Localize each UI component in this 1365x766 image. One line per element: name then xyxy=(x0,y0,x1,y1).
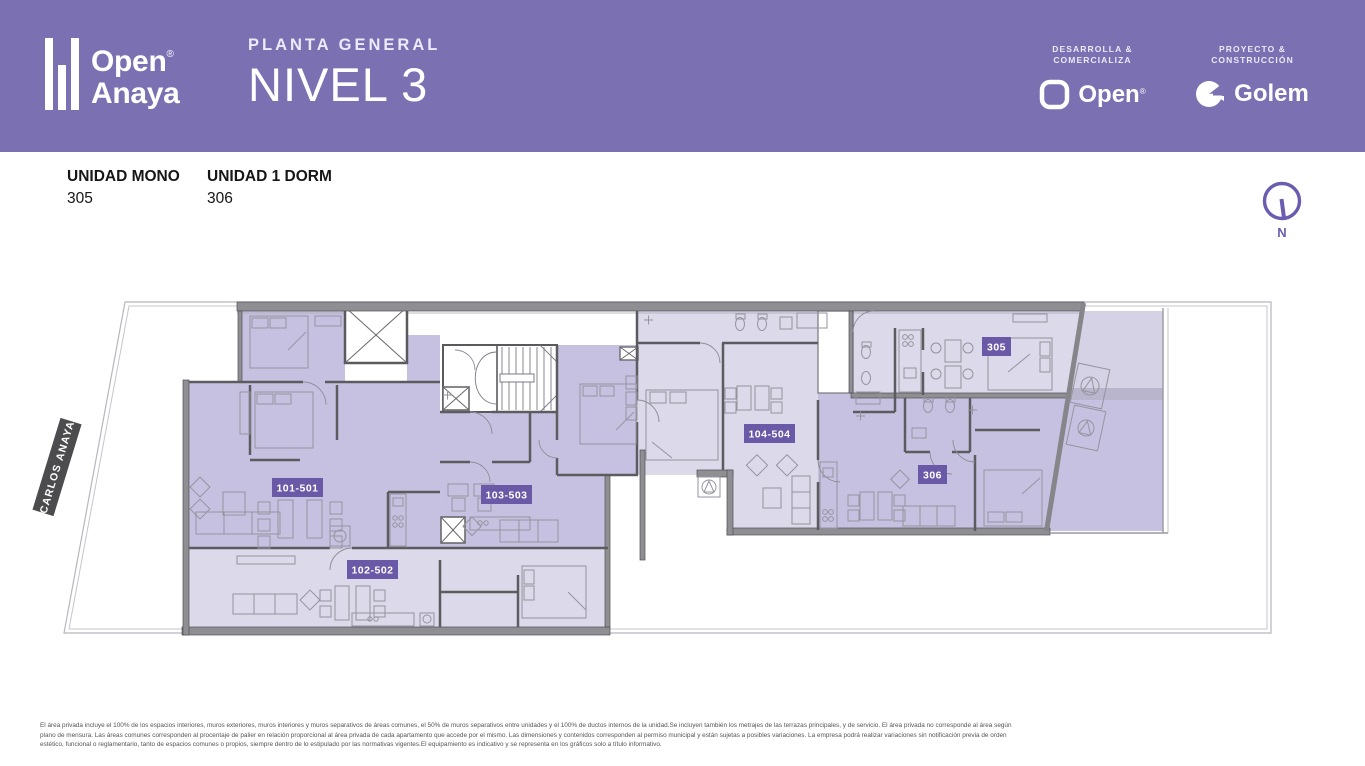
disclaimer-line-3: estético, funcional o reglamentario, tan… xyxy=(40,740,1330,750)
svg-text:102-502: 102-502 xyxy=(351,565,393,577)
disclaimer: El área privada incluye el 100% de los e… xyxy=(40,721,1330,750)
disclaimer-line-1: El área privada incluye el 100% de los e… xyxy=(40,721,1330,731)
disclaimer-line-2: plano de mensura. Las áreas comunes corr… xyxy=(40,731,1330,741)
page: Open® Anaya PLANTA GENERAL NIVEL 3 DESAR… xyxy=(0,0,1365,766)
unit-label-104-504: 104-504 xyxy=(744,424,795,443)
svg-text:101-501: 101-501 xyxy=(276,483,318,495)
svg-text:306: 306 xyxy=(923,470,942,482)
street-label: CARLOS ANAYA xyxy=(32,418,81,517)
unit-label-102-502: 102-502 xyxy=(347,560,398,579)
unit-label-103-503: 103-503 xyxy=(481,485,532,504)
svg-text:305: 305 xyxy=(987,342,1006,354)
unit-label-101-501: 101-501 xyxy=(272,478,323,497)
svg-text:103-503: 103-503 xyxy=(485,490,527,502)
unit-label-306: 306 xyxy=(918,465,947,484)
floor-plan: CARLOS ANAYA 101-501 102-502 103-503 104… xyxy=(0,0,1365,766)
svg-text:104-504: 104-504 xyxy=(748,429,790,441)
unit-label-305: 305 xyxy=(982,337,1011,356)
